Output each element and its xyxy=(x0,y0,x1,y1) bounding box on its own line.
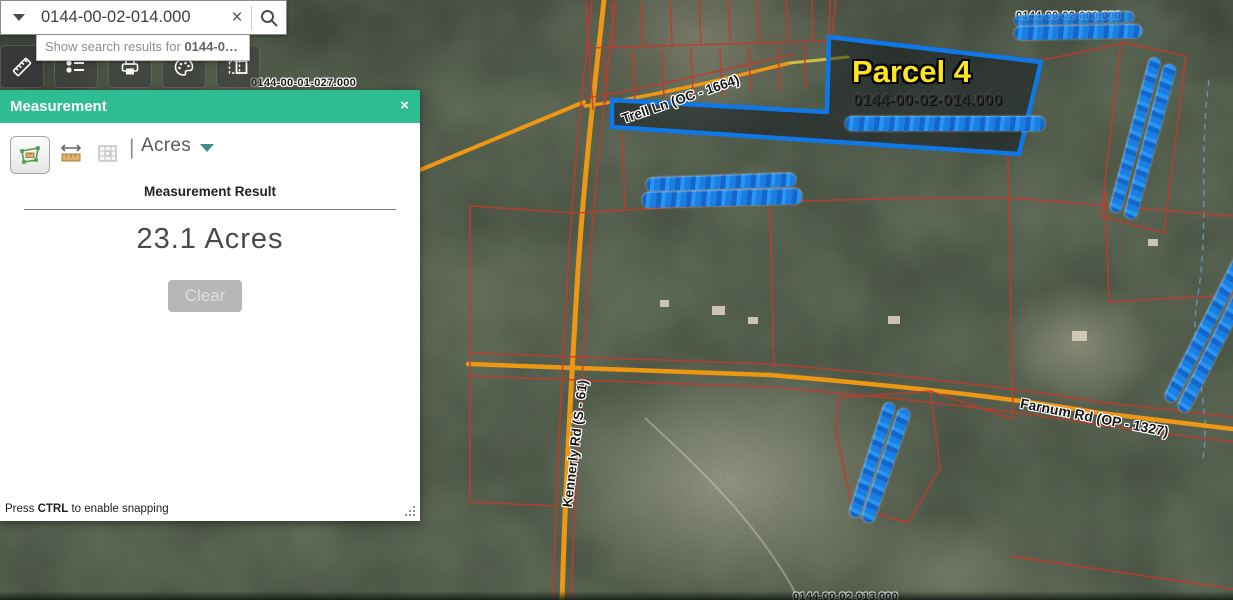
unit-dropdown[interactable]: Acres xyxy=(141,135,214,157)
chevron-down-icon xyxy=(200,144,214,152)
gis-parcel-viewer: Kennerly Rd (S - 61) Farnum Rd (OP - 132… xyxy=(0,0,1233,600)
houses-layer xyxy=(660,239,1158,341)
search-suggestion-item[interactable]: Show search results for 0144-0… xyxy=(36,35,250,61)
suggestion-prefix: Show search results for xyxy=(45,39,184,54)
clear-button[interactable]: Clear xyxy=(168,280,242,312)
measure-area-button[interactable] xyxy=(10,136,50,174)
unit-label: Acres xyxy=(141,135,191,157)
measurement-panel-header: Measurement × xyxy=(0,90,420,123)
redacted-owner-label xyxy=(845,116,1045,131)
tools-separator: | xyxy=(129,136,134,160)
search-input[interactable] xyxy=(37,8,223,27)
parcel-id-label-panel-edge: 0144-00-01-027.000 xyxy=(251,77,356,89)
panel-resize-handle[interactable] xyxy=(404,505,416,517)
result-divider xyxy=(24,209,396,210)
creek-line xyxy=(1195,80,1209,458)
measure-location-button[interactable] xyxy=(95,141,121,167)
parcel-id-label-bottom: 0144-00-02-013.000 xyxy=(793,591,898,600)
measurement-panel: Measurement × xyxy=(0,90,420,521)
search-icon xyxy=(259,8,279,28)
measurement-result-value: 23.1 Acres xyxy=(0,223,420,256)
road-diagonal xyxy=(420,102,584,170)
chevron-down-icon xyxy=(13,14,25,21)
selected-parcel-id: 0144-00-02-014.000 xyxy=(853,92,1002,110)
area-measure-icon xyxy=(17,144,43,166)
field-track xyxy=(645,418,798,598)
location-measure-icon xyxy=(95,141,121,167)
search-bar: × xyxy=(0,0,287,35)
measurement-result-label: Measurement Result xyxy=(0,184,420,199)
redacted-label xyxy=(1014,24,1142,40)
close-icon[interactable]: × xyxy=(400,90,409,121)
search-source-dropdown[interactable] xyxy=(1,1,37,34)
search-clear-button[interactable]: × xyxy=(223,0,251,35)
selected-parcel-title: Parcel 4 xyxy=(852,54,971,90)
snapping-hint: Press CTRL to enable snapping xyxy=(5,503,169,515)
search-submit-button[interactable] xyxy=(252,1,286,34)
panel-title: Measurement xyxy=(10,90,107,123)
suggestion-term: 0144-0… xyxy=(184,39,237,54)
distance-measure-icon xyxy=(57,140,85,168)
ruler-icon xyxy=(10,55,34,79)
measure-distance-button[interactable] xyxy=(57,140,85,168)
